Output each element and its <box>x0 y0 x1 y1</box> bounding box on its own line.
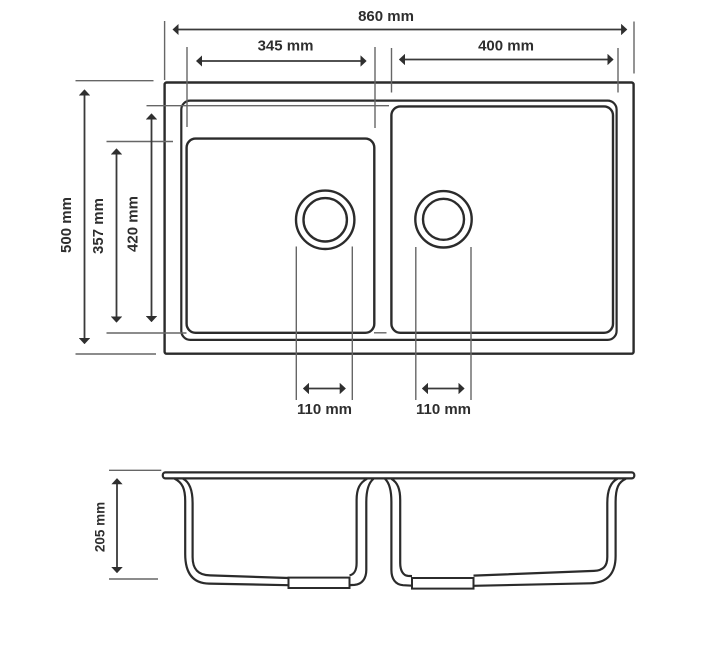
svg-text:345 mm: 345 mm <box>258 38 314 55</box>
svg-text:400 mm: 400 mm <box>478 38 534 55</box>
svg-text:357 mm: 357 mm <box>90 198 107 254</box>
svg-text:860 mm: 860 mm <box>358 8 414 25</box>
svg-text:420 mm: 420 mm <box>125 196 142 252</box>
svg-text:110 mm: 110 mm <box>416 401 471 418</box>
svg-text:110 mm: 110 mm <box>297 401 352 418</box>
svg-text:500 mm: 500 mm <box>58 197 75 253</box>
svg-text:205 mm: 205 mm <box>93 502 108 552</box>
